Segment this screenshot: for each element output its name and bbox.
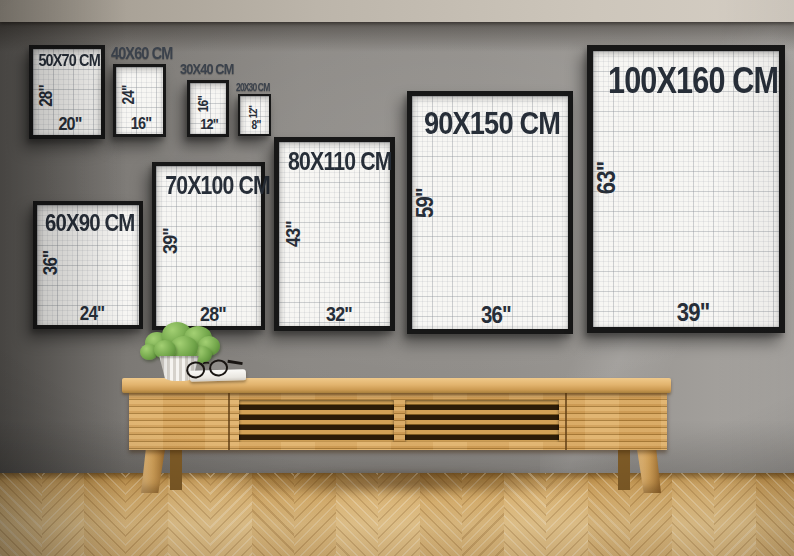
frame-size-title: 50X70 CM [33, 52, 101, 69]
wall-size-label-20x30: 20X30 CM [236, 83, 275, 93]
wall-size-label-text: 30X40 CM [180, 61, 233, 76]
frame-height-inches-text: 24" [121, 86, 137, 105]
wall-size-label-40x60: 40X60 CM [111, 45, 183, 62]
frame-size-title: 80X110 CM [279, 149, 390, 174]
frame-size-title: 90X150 CM [412, 107, 568, 139]
wall-size-label-text: 20X30 CM [236, 83, 269, 93]
frame-width-inches-text: 20" [58, 114, 81, 133]
frame-size-title: 100X160 CM [593, 63, 779, 99]
glasses-bridge [202, 361, 210, 369]
poster-frame-50x70: 50X70 CM 28" 20" [29, 45, 105, 139]
sideboard-back-leg [170, 450, 182, 490]
sideboard-body [129, 393, 667, 450]
frame-size-title: 70X100 CM [156, 173, 261, 198]
poster-frame-40x60: 24" 16" [113, 64, 166, 137]
frame-size-title-text: 50X70 CM [38, 52, 99, 69]
frame-height-inches-text: 43" [282, 221, 303, 247]
glasses-right-lens [208, 359, 228, 378]
sideboard-middle-panel [228, 393, 567, 450]
room-scene: 50X70 CM 28" 20" 40X60 CM 24" 16" 30X40 … [0, 0, 794, 556]
sideboard-floor-shadow [128, 466, 673, 502]
frame-height-inches-text: 16" [196, 96, 210, 112]
frame-size-title: 60X90 CM [37, 211, 139, 235]
frame-size-title-text: 80X110 CM [288, 149, 391, 174]
sideboard-slatted-vent [239, 400, 394, 442]
frame-height-inches-text: 12" [248, 106, 259, 118]
frame-width-inches-text: 39" [677, 299, 710, 325]
poster-frame-20x30: 12" 8" [238, 94, 271, 136]
frame-size-title-text: 90X150 CM [424, 107, 560, 139]
frame-width-inches-text: 32" [326, 303, 352, 324]
frame-height-inches-text: 59" [413, 188, 437, 218]
wall-size-label-30x40: 30X40 CM [180, 61, 243, 76]
frame-width-inches-text: 12" [201, 116, 219, 131]
frame-size-title-text: 70X100 CM [165, 173, 270, 198]
poster-frame-60x90: 60X90 CM 36" 24" [33, 201, 143, 329]
frame-height-inches-text: 28" [37, 85, 55, 107]
poster-frame-100x160: 100X160 CM 63" 39" [587, 45, 785, 333]
frame-height-inches-text: 63" [593, 162, 619, 195]
frame-size-title-text: 100X160 CM [608, 63, 778, 99]
wall-size-label-text: 40X60 CM [111, 45, 172, 62]
frame-width-inches-text: 24" [80, 303, 104, 323]
frame-width-inches-text: 36" [481, 303, 511, 327]
frame-height-inches-text: 36" [40, 250, 60, 274]
ceiling [0, 0, 794, 22]
poster-frame-70x100: 70X100 CM 39" 28" [152, 162, 265, 330]
poster-frame-30x40: 16" 12" [187, 80, 229, 137]
sideboard-slatted-vent [405, 400, 559, 442]
poster-frame-80x110: 80X110 CM 43" 32" [274, 137, 395, 331]
poster-frame-90x150: 90X150 CM 59" 36" [407, 91, 573, 334]
frame-width-inches-text: 28" [200, 303, 226, 324]
frame-width-inches-text: 16" [131, 115, 151, 132]
frame-height-inches-text: 39" [159, 228, 180, 254]
frame-width-inches-text: 8" [251, 119, 260, 131]
sideboard-back-leg [618, 450, 630, 490]
frame-size-title-text: 60X90 CM [45, 211, 135, 235]
